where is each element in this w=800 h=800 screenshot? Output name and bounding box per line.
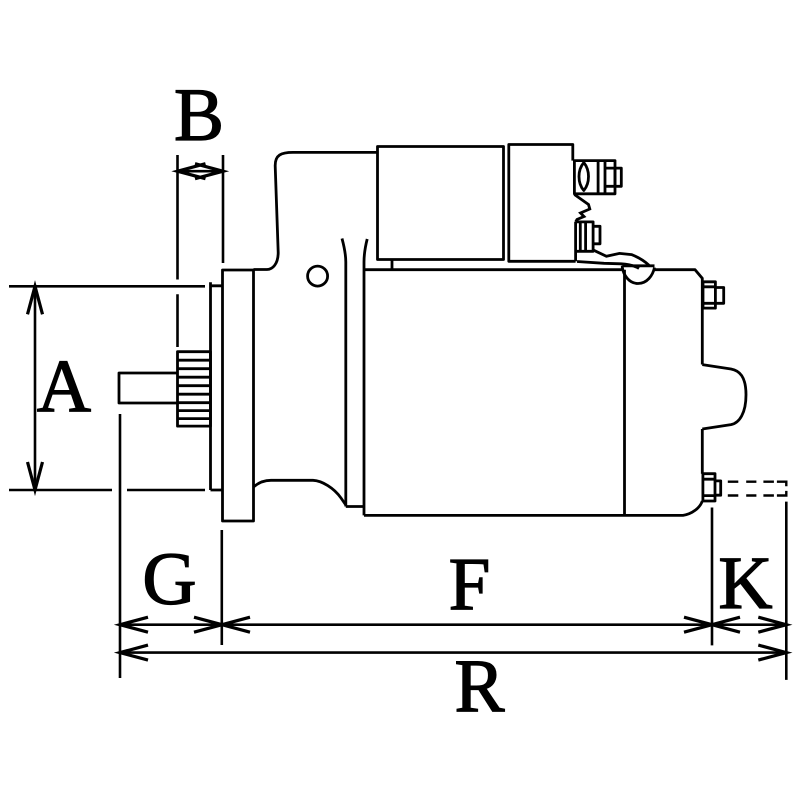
svg-text:R: R (454, 645, 504, 728)
svg-text:B: B (174, 74, 224, 157)
svg-text:A: A (37, 345, 91, 428)
svg-text:K: K (718, 542, 772, 625)
svg-text:F: F (449, 543, 491, 626)
svg-text:G: G (142, 538, 196, 621)
